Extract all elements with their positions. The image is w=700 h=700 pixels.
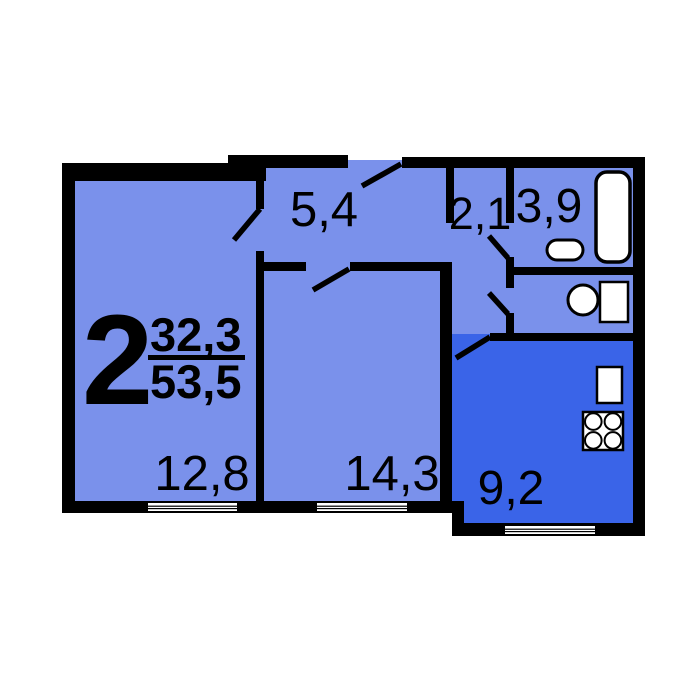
stove-burner bbox=[605, 432, 622, 449]
window-frame-line bbox=[505, 531, 595, 532]
window-frame-line bbox=[148, 508, 237, 509]
stove-burner bbox=[585, 413, 602, 430]
window-frame-line bbox=[317, 508, 407, 509]
corridor-area-label: 2,1 bbox=[449, 188, 512, 239]
toilet-bowl-icon bbox=[568, 285, 598, 315]
wall-exterior-right bbox=[633, 157, 645, 536]
kitchen-sink-icon bbox=[597, 367, 622, 403]
living-area-label: 32,3 bbox=[150, 308, 241, 361]
floor-plan: 2 32,3 53,5 5,4 2,1 3,9 12,8 14,3 9,2 bbox=[0, 0, 700, 700]
wall-bedroom-kitchen bbox=[440, 262, 452, 513]
wall-exterior-top-right bbox=[402, 157, 645, 168]
window-bedroom bbox=[317, 503, 407, 511]
window-glass bbox=[505, 526, 595, 534]
window-glass bbox=[317, 503, 407, 511]
wall-exterior-left bbox=[62, 163, 75, 513]
bedroom-area-label: 14,3 bbox=[344, 447, 439, 501]
total-area-label: 53,5 bbox=[150, 355, 241, 408]
stove-burner bbox=[585, 432, 602, 449]
hallway-area-label: 5,4 bbox=[290, 183, 358, 237]
living-room-area-label: 12,8 bbox=[154, 447, 249, 501]
wall-wc-kitchen bbox=[490, 333, 645, 341]
kitchen-area-label: 9,2 bbox=[478, 462, 545, 515]
window-glass bbox=[148, 503, 237, 511]
washbasin-icon bbox=[547, 240, 583, 260]
bathroom-area-label: 3,9 bbox=[516, 180, 583, 233]
wall-exterior-top-ledge bbox=[228, 155, 348, 168]
wall-bedroom-top-left bbox=[256, 262, 306, 271]
wall-bedroom-top-right bbox=[350, 262, 452, 271]
wall-living-bedroom bbox=[256, 251, 264, 513]
window-frame-line bbox=[317, 506, 407, 507]
wall-bathroom-wc bbox=[506, 267, 639, 275]
window-frame-line bbox=[148, 506, 237, 507]
window-living-room bbox=[148, 503, 237, 511]
apartment-type-label: 2 bbox=[82, 289, 153, 432]
stove-burner bbox=[605, 413, 622, 430]
window-kitchen bbox=[505, 526, 595, 534]
bathtub-icon bbox=[596, 172, 630, 262]
toilet-tank-icon bbox=[600, 282, 628, 322]
wall-living-hallway-stub bbox=[256, 179, 264, 209]
floor-plan-canvas: 2 32,3 53,5 5,4 2,1 3,9 12,8 14,3 9,2 bbox=[0, 0, 700, 700]
window-frame-line bbox=[505, 529, 595, 530]
stove-icon bbox=[583, 412, 623, 450]
